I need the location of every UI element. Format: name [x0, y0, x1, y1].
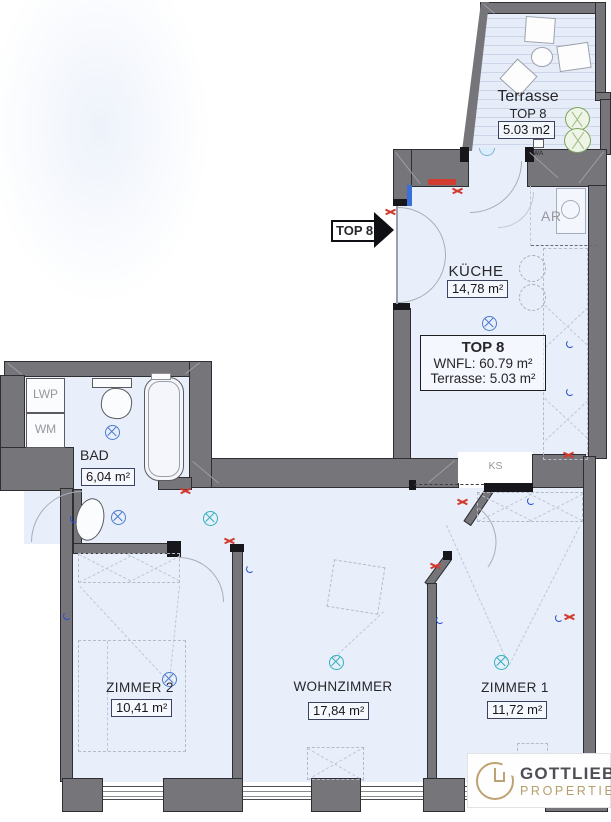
room-sublabel-terrasse: TOP 8 [466, 106, 590, 121]
wall [427, 583, 437, 782]
ar-boundary [531, 245, 597, 246]
door-jamb [230, 544, 244, 552]
tub-faucet [151, 373, 171, 380]
bathtub-inner [148, 381, 180, 477]
wall [311, 778, 361, 812]
terrace-table [524, 16, 556, 44]
label-lwp: LWP [26, 387, 65, 401]
toilet-cistern [92, 378, 132, 388]
unit-info-wnfl: WNFL: 60.79 m² [423, 356, 543, 371]
ceiling-light-icon [105, 425, 120, 440]
wall [595, 2, 606, 97]
wall [393, 308, 411, 460]
bed-line [107, 641, 108, 751]
socket-icon [436, 616, 444, 624]
wall [583, 456, 596, 782]
ceiling-light-icon [203, 511, 218, 526]
area-badge-kueche: 14,78 m² [447, 280, 508, 298]
sink-bowl-icon [519, 284, 546, 311]
ceiling-light-icon [494, 655, 509, 670]
entry-arrow-icon [374, 212, 394, 248]
wall [423, 778, 465, 812]
kitchen-counter [543, 248, 588, 460]
logo-tagline: PROPERTIES [520, 784, 611, 798]
label-wm: WM [26, 422, 65, 436]
table [327, 559, 386, 615]
room-label-zimmer2: ZIMMER 2 [80, 680, 200, 695]
room-label-terrasse: Terrasse [466, 88, 590, 106]
socket-icon [566, 388, 574, 396]
area-badge-zimmer2: 10,41 m² [111, 699, 172, 717]
terrace-table-round [531, 47, 553, 67]
wardrobe [477, 492, 583, 522]
door-jamb [409, 480, 416, 490]
door-jamb [443, 551, 452, 560]
socket-icon [246, 565, 254, 573]
terrace-table [556, 42, 591, 72]
ar-boundary [530, 186, 531, 246]
wall [4, 361, 204, 377]
wall [480, 2, 605, 14]
door-jamb [393, 303, 410, 310]
room-label-wohnzimmer: WOHNZIMMER [288, 679, 398, 694]
area-badge-zimmer1: 11,72 m² [487, 701, 547, 719]
entry-arrow-label: TOP 8 [336, 223, 373, 238]
door-jamb [460, 147, 469, 162]
unit-info-title: TOP 8 [423, 339, 543, 356]
unit-info-terrasse: Terrasse: 5.03 m² [423, 371, 543, 386]
entry-arrow-box: TOP 8 [331, 220, 378, 242]
bed [78, 640, 186, 752]
wall [232, 546, 243, 782]
label-wa: WA [533, 150, 543, 157]
plant-icon [564, 128, 591, 153]
room-label-kueche: KÜCHE [410, 263, 542, 280]
radiator-icon [457, 497, 468, 506]
wall [0, 375, 25, 450]
watermark-smudge [0, 0, 220, 320]
radiator-icon [430, 561, 441, 570]
wall [163, 778, 243, 812]
opening-line [414, 484, 484, 485]
socket-icon [70, 515, 78, 523]
radiator-icon [563, 450, 574, 459]
wall [588, 185, 607, 459]
wall [600, 99, 611, 155]
radiator-icon [180, 486, 191, 495]
wall [62, 778, 103, 812]
wall [484, 483, 533, 492]
logo-name: GOTTLIEB [520, 764, 611, 784]
unit-info-box: TOP 8 WNFL: 60.79 m² Terrasse: 5.03 m² [420, 335, 546, 391]
socket-icon [566, 340, 574, 348]
area-badge-bad: 6,04 m² [81, 468, 135, 486]
room-label-zimmer1: ZIMMER 1 [460, 680, 570, 695]
logo-mark-bar [503, 772, 505, 782]
ceiling-light-icon [111, 510, 126, 525]
wall [0, 447, 74, 491]
socket-icon [555, 614, 563, 622]
wa-appliance [533, 139, 544, 148]
radiator-icon [564, 612, 575, 621]
ceiling-light-icon [482, 316, 497, 331]
area-badge-terrasse: 5.03 m2 [498, 121, 555, 139]
label-ks: KS [458, 460, 533, 472]
label-ar: AR [541, 208, 561, 224]
logo: GOTTLIEB PROPERTIES [467, 753, 611, 808]
area-badge-wohnzimmer: 17,84 m² [308, 702, 369, 720]
ceiling-light-icon [329, 655, 344, 670]
floor-plan: Terrasse TOP 8 5.03 m2 KÜCHE 14,78 m² TO… [0, 0, 611, 822]
heater-strip [407, 185, 412, 206]
socket-icon [63, 612, 71, 620]
room-label-bad: BAD [80, 447, 109, 463]
radiator-icon [224, 536, 235, 545]
logo-mark-icon [476, 762, 514, 800]
washer-drum-icon [561, 200, 580, 219]
radiator-icon [452, 186, 463, 195]
radiator [428, 179, 456, 185]
